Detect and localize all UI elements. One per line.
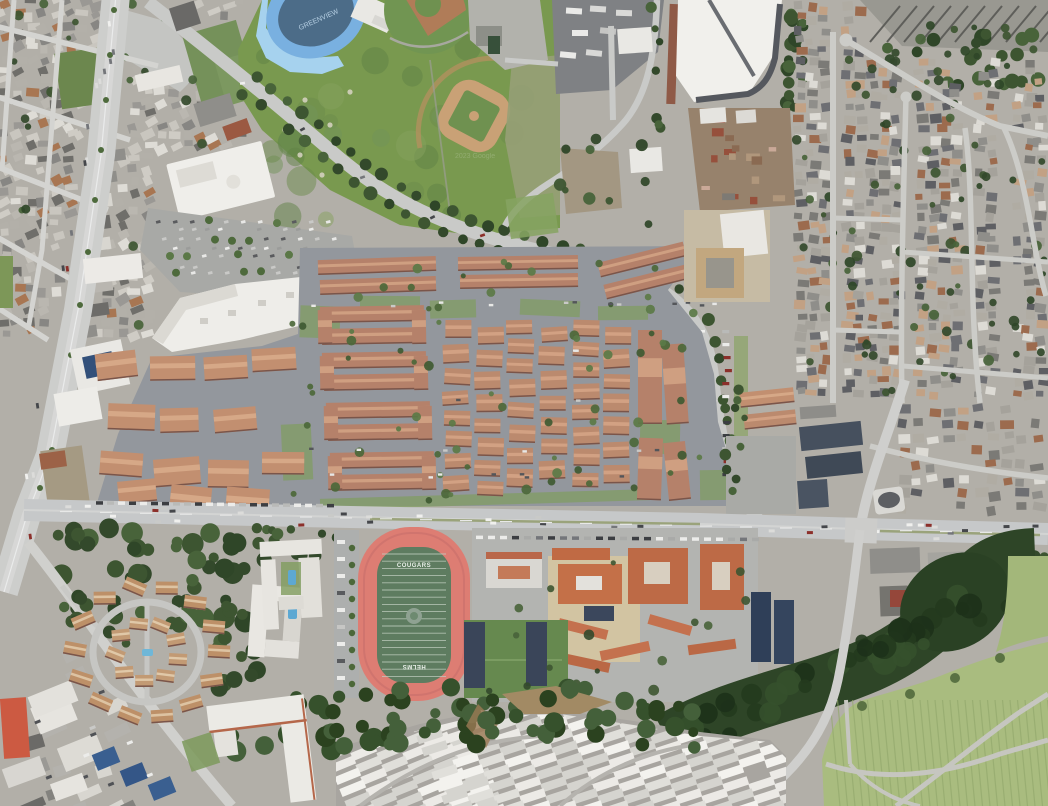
svg-text:2023 Google: 2023 Google: [455, 153, 495, 160]
svg-text:COUGARS: COUGARS: [397, 563, 431, 569]
svg-text:HELMS: HELMS: [402, 663, 426, 669]
